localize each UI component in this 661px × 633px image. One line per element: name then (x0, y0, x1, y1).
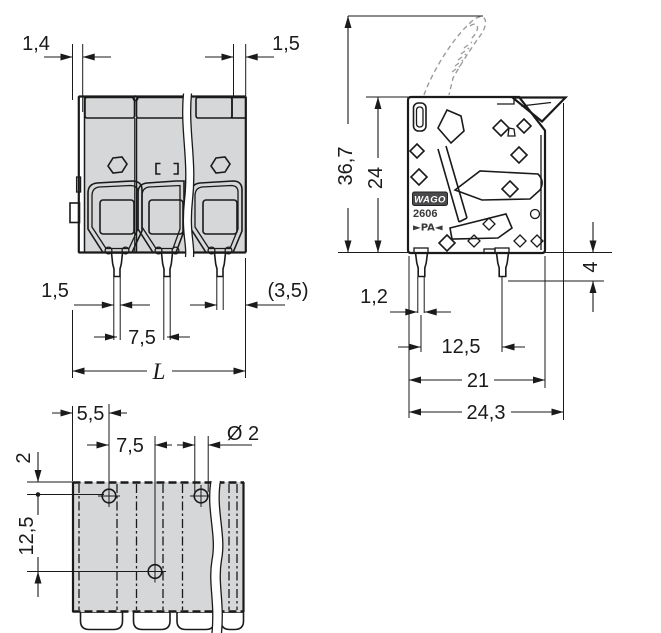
dim-bottom-pitch: 7,5 (116, 435, 144, 457)
material-marking: ►PA◄ (413, 223, 443, 234)
dim-side-overall-depth: 24,3 (467, 402, 506, 424)
dim-front-end-offset: (3,5) (267, 280, 308, 302)
dim-side-housing-height: 24 (365, 167, 387, 189)
dim-side-pin-row-spacing: 12,5 (442, 336, 481, 358)
solder-pin (497, 253, 509, 277)
dim-side-overall-height: 36,7 (335, 147, 357, 186)
dim-side-pin-width: 1,2 (360, 286, 388, 308)
dim-front-pitch: 7,5 (128, 327, 156, 349)
technical-drawing-page: 1,4 1,5 1,5 (3,5) 7,5 L (0, 0, 661, 633)
mounting-tab (221, 612, 244, 630)
mounting-tab (81, 612, 123, 630)
solder-pin (416, 253, 428, 277)
side-view: WAGO 2606 ►PA◄ 36,7 24 4 1 (335, 16, 612, 424)
dim-front-length: L (152, 359, 166, 384)
dim-bottom-row-offset: 2 (13, 452, 35, 463)
dim-bottom-edge-to-hole: 5,5 (77, 403, 105, 425)
clamp-lever (513, 98, 566, 122)
solder-pin (162, 253, 173, 277)
phantom-lever-open (424, 17, 486, 95)
terminal-block-drawing: 1,4 1,5 1,5 (3,5) 7,5 L (0, 0, 661, 633)
dim-side-pin-length: 4 (580, 261, 602, 272)
brand-marking: WAGO (414, 195, 446, 206)
side-dimensions: 36,7 24 4 1,2 12,5 21 24,3 (335, 16, 602, 424)
dim-bottom-hole-diameter: Ø 2 (227, 423, 259, 445)
dim-side-housing-depth: 21 (467, 370, 489, 392)
dim-front-pin-width: 1,5 (41, 280, 69, 302)
solder-pin (215, 253, 226, 277)
dim-bottom-row-spacing: 12,5 (16, 517, 38, 556)
solder-pin (112, 253, 123, 277)
front-view: 1,4 1,5 1,5 (3,5) 7,5 L (22, 33, 308, 384)
dim-front-top-right: 1,5 (272, 33, 300, 55)
mounting-tab (134, 612, 171, 630)
front-housing-body (85, 97, 246, 253)
dim-front-top-left: 1,4 (22, 33, 50, 55)
series-marking: 2606 (413, 208, 437, 220)
mounting-tab (177, 612, 215, 630)
bottom-view: 5,5 7,5 Ø 2 2 12,5 (13, 403, 259, 633)
